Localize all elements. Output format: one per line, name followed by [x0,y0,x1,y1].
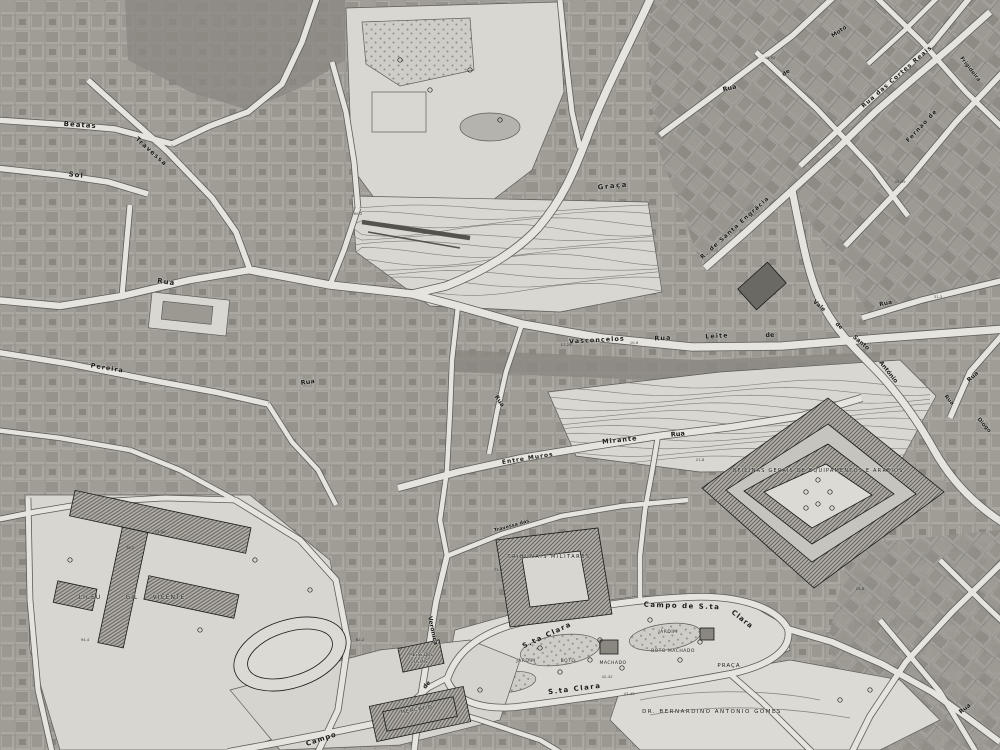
parcel-number: 69-2 [354,211,363,216]
parcel-number: 94-4 [81,637,90,642]
map-label: JARDIM [515,658,535,664]
map-label: de [765,331,775,339]
map-label: TRIBUNAIS MILITARES [507,554,591,560]
parcel-number: 62-2 [356,637,365,642]
map-label: Rua [670,429,685,438]
parcel-number: 77-20 [154,529,166,534]
map-label: Sol [68,170,84,180]
parcel-number: 47-43 [623,691,635,696]
parcel-number: 21-8 [696,457,705,462]
map-label: Rua [654,334,671,343]
map-label: BOTO [561,658,576,664]
city-map-view: BeatasSolTravessaRuaPereiraRuaGraçaRuade… [0,0,1000,750]
map-label: DR. BERNARDINO ANTONIO GOMES [642,709,782,715]
parcel-number: 42-42 [601,674,613,679]
city-map-canvas[interactable]: BeatasSolTravessaRuaPereiraRuaGraçaRuade… [0,0,1000,750]
map-label: MESSE DOS [409,652,433,657]
tribunais-militares-building [496,528,612,627]
map-label: Leite [705,331,729,340]
parcel-number: 79-2 [126,545,135,550]
parcel-number: 73-4 [494,567,503,572]
pond [460,113,520,141]
parcel-number: 31-3 [934,294,943,299]
parcel-number: 40-52 [764,55,776,60]
map-label: JARDIM [657,629,677,635]
map-label: VICENTE [153,594,186,601]
map-label: PRAÇA [717,663,740,669]
map-label: MACHADO [600,660,627,666]
parcel-number: 43-49 [894,179,906,184]
map-label: BOTO MACHADO [651,648,695,654]
map-label: GIL [126,594,139,601]
map-label: LICEU [79,594,101,601]
parcel-number: 10-6 [630,340,639,345]
map-label: OFICIAIS [410,659,428,664]
map-label: OFICINAS GERAIS DE EQUIPAMENTOS E ARREIO… [732,468,903,474]
parcel-number: 17-23 [560,342,572,347]
parcel-number: 25-8 [856,586,865,591]
